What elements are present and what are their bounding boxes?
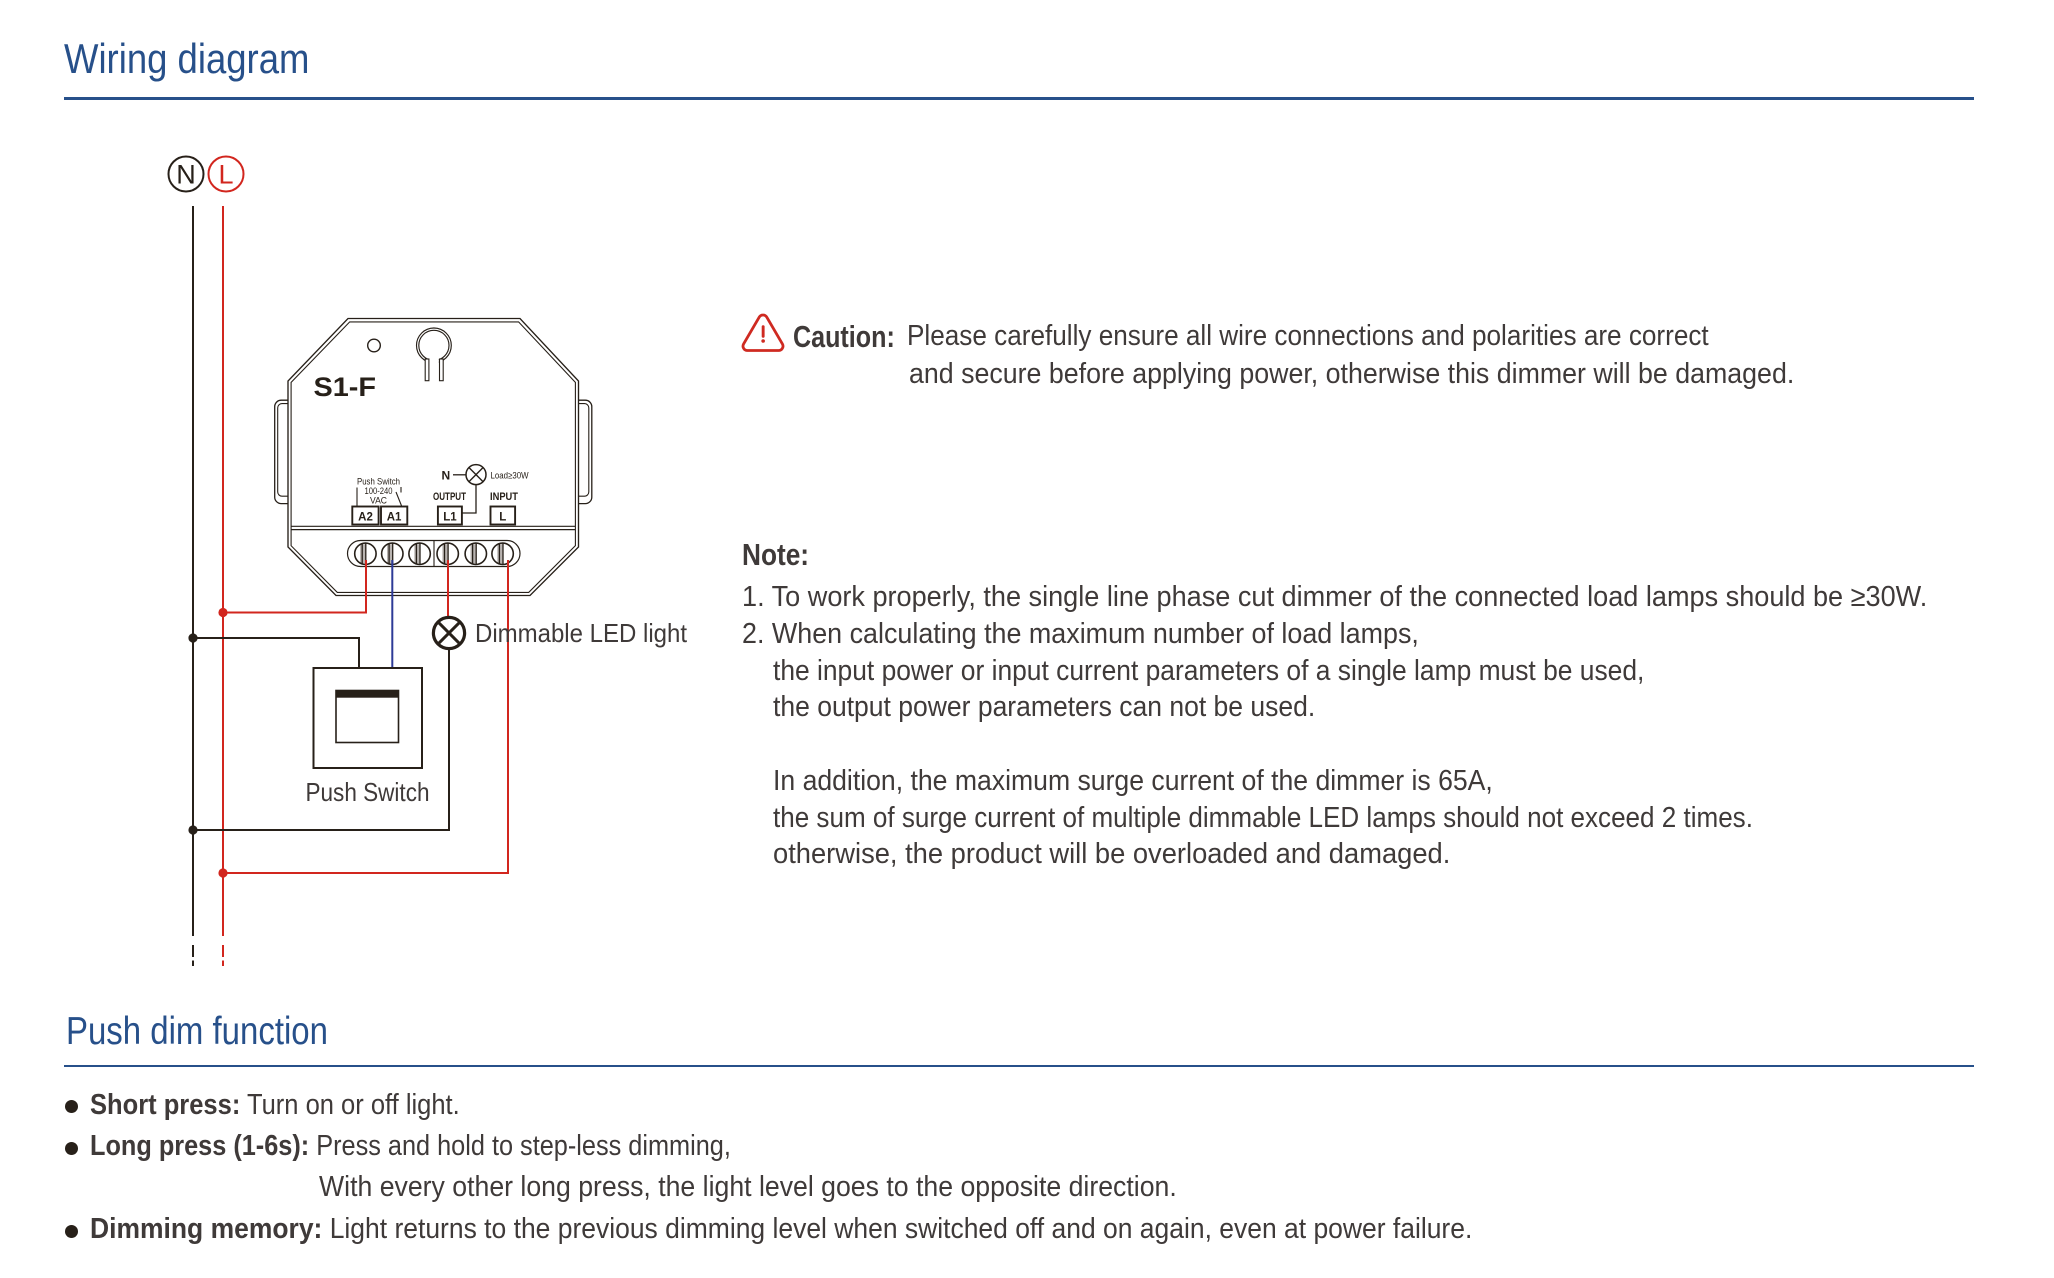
svg-text:A1: A1 bbox=[387, 512, 402, 524]
svg-text:OUTPUT: OUTPUT bbox=[433, 491, 466, 503]
svg-text:VAC: VAC bbox=[370, 496, 387, 506]
svg-text:N: N bbox=[176, 160, 196, 190]
svg-text:Push Switch: Push Switch bbox=[306, 777, 430, 807]
svg-text:A2: A2 bbox=[358, 512, 373, 524]
svg-text:INPUT: INPUT bbox=[490, 491, 518, 503]
svg-text:N: N bbox=[442, 469, 451, 483]
svg-text:L: L bbox=[218, 160, 233, 190]
svg-text:S1-F: S1-F bbox=[314, 372, 377, 402]
svg-text:Load≥30W: Load≥30W bbox=[491, 471, 529, 481]
svg-text:L: L bbox=[499, 512, 506, 524]
svg-text:Dimmable LED light: Dimmable LED light bbox=[475, 618, 688, 648]
svg-text:Push Switch: Push Switch bbox=[357, 477, 400, 487]
svg-text:L1: L1 bbox=[443, 512, 457, 524]
